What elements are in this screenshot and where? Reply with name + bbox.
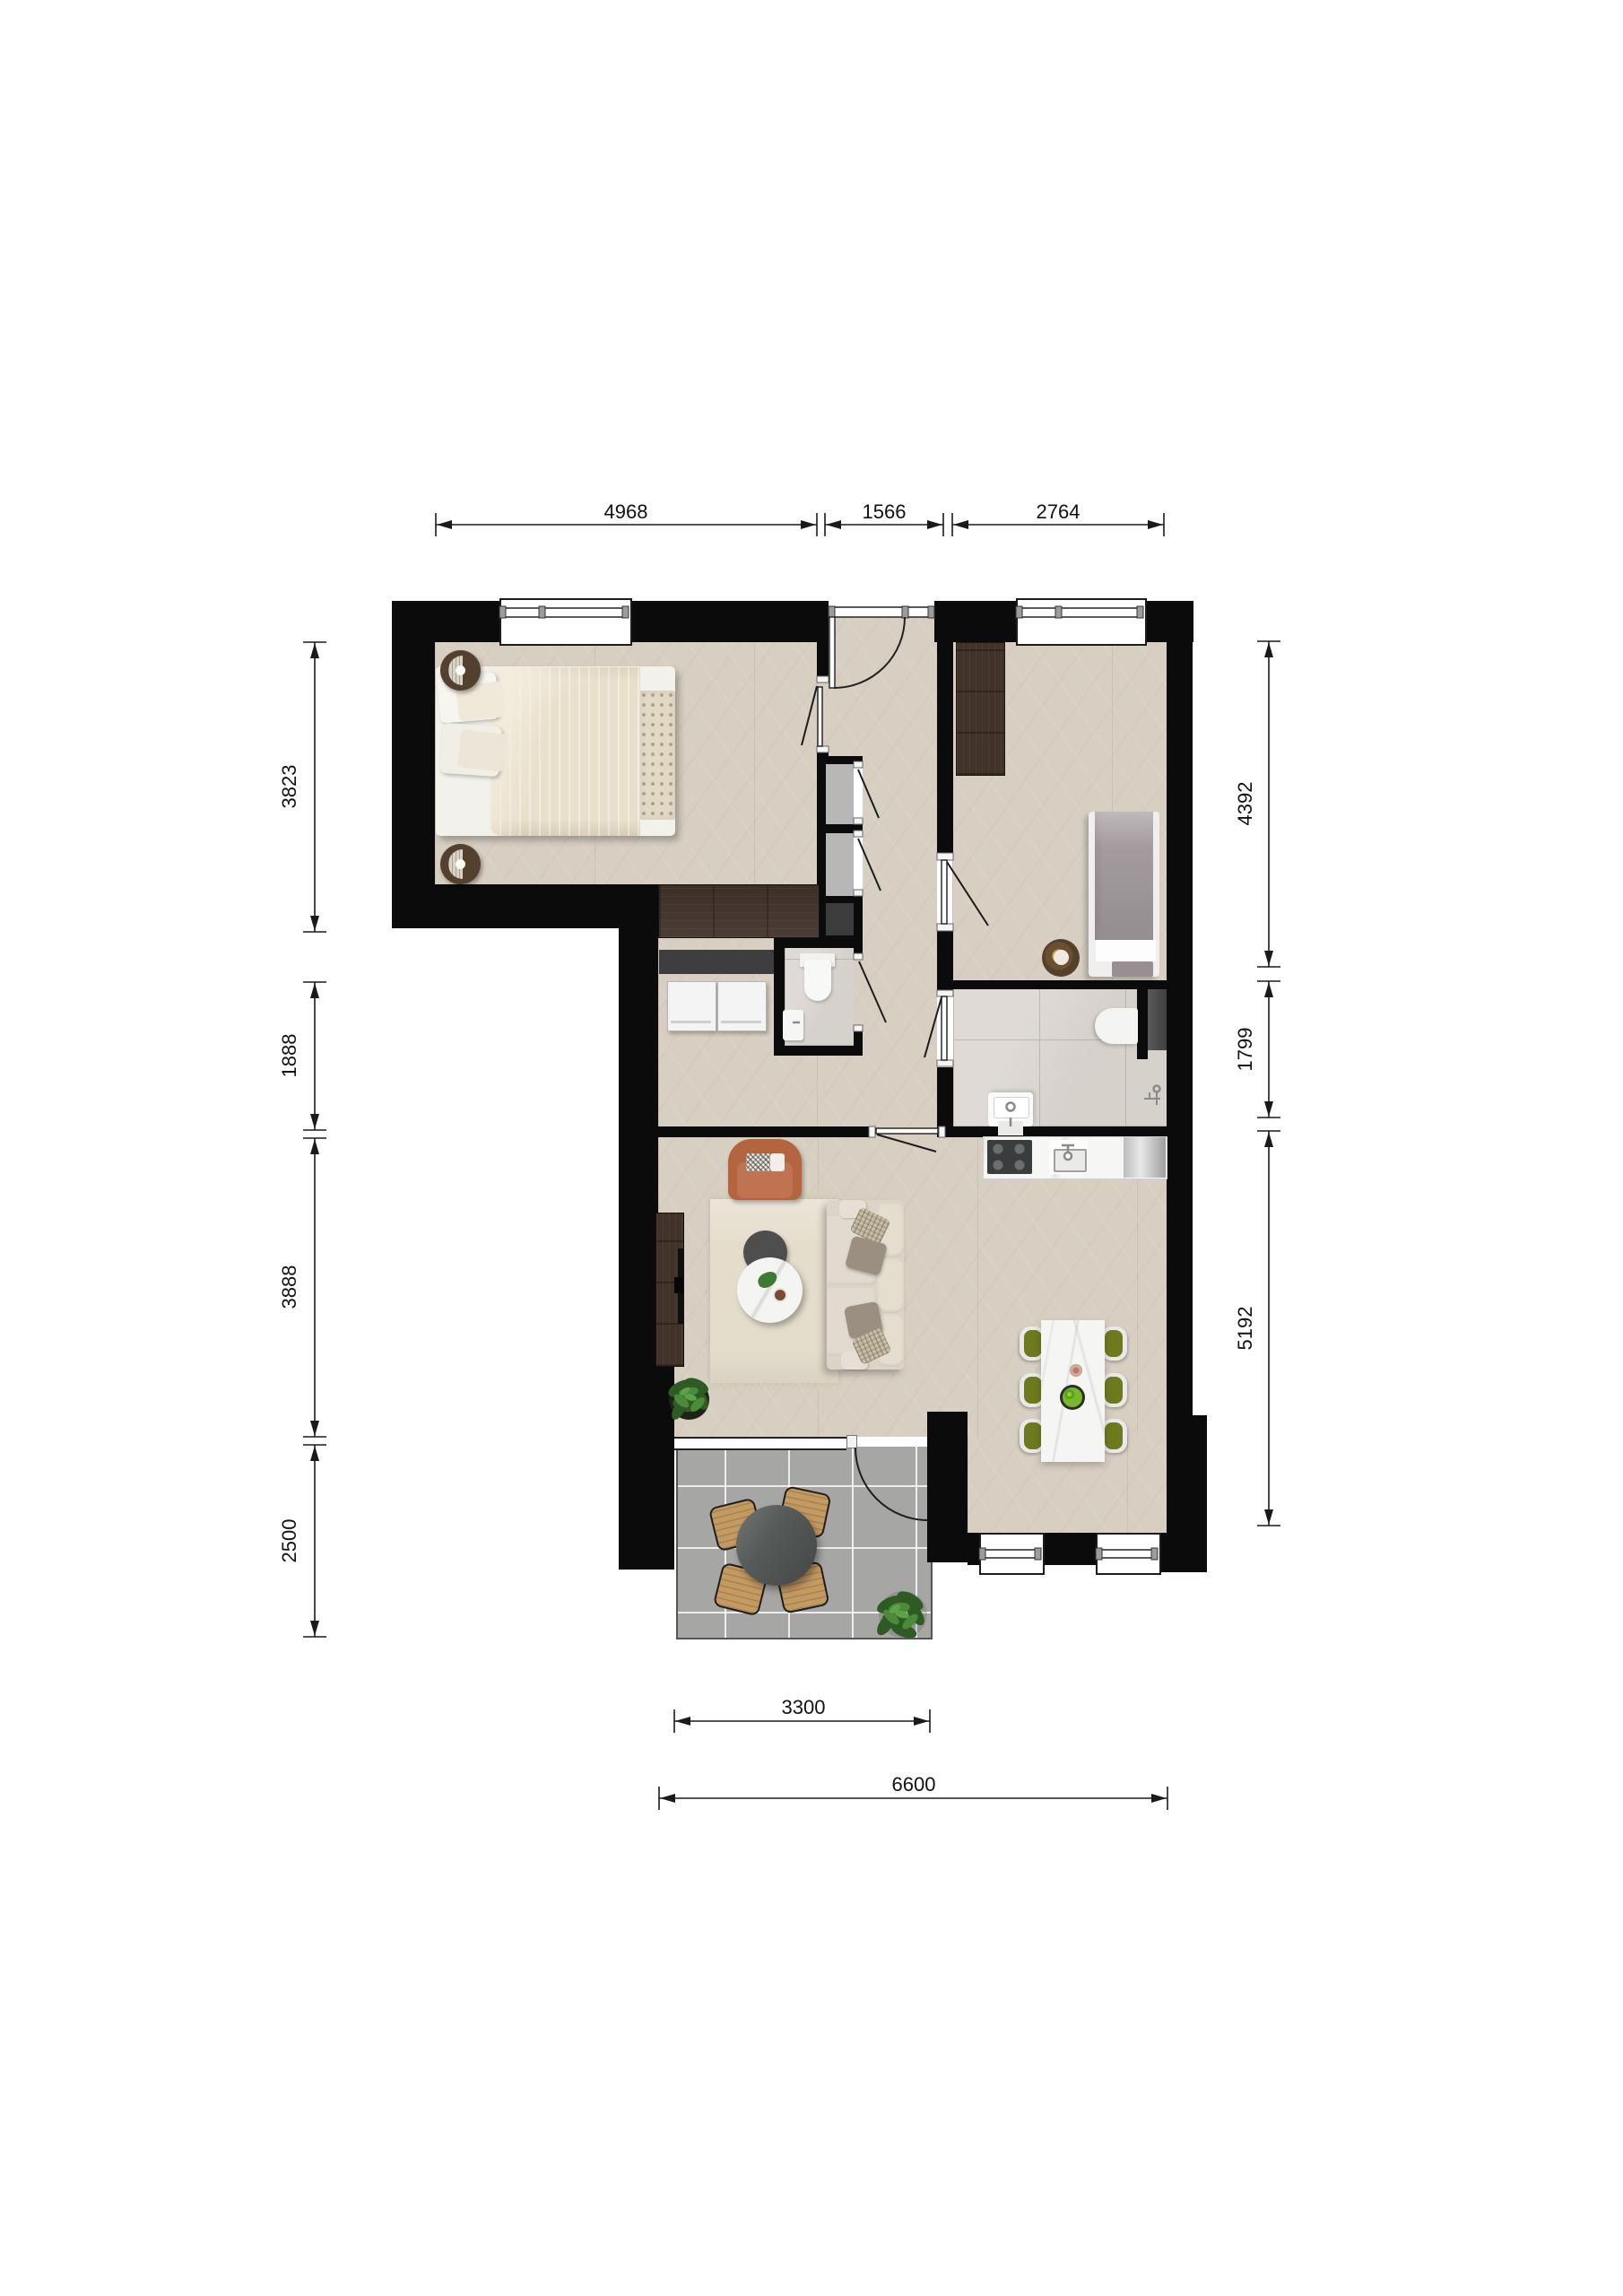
svg-text:3823: 3823 xyxy=(278,765,300,809)
svg-text:4968: 4968 xyxy=(604,500,648,523)
svg-text:2500: 2500 xyxy=(278,1519,300,1563)
svg-text:6600: 6600 xyxy=(892,1773,936,1796)
svg-text:4392: 4392 xyxy=(1234,782,1256,826)
svg-text:5192: 5192 xyxy=(1234,1307,1256,1351)
svg-text:3300: 3300 xyxy=(782,1696,826,1718)
svg-text:1888: 1888 xyxy=(278,1034,300,1078)
svg-text:2764: 2764 xyxy=(1037,500,1081,523)
svg-text:3888: 3888 xyxy=(278,1265,300,1309)
svg-text:1566: 1566 xyxy=(863,500,907,523)
svg-text:1799: 1799 xyxy=(1234,1028,1256,1072)
